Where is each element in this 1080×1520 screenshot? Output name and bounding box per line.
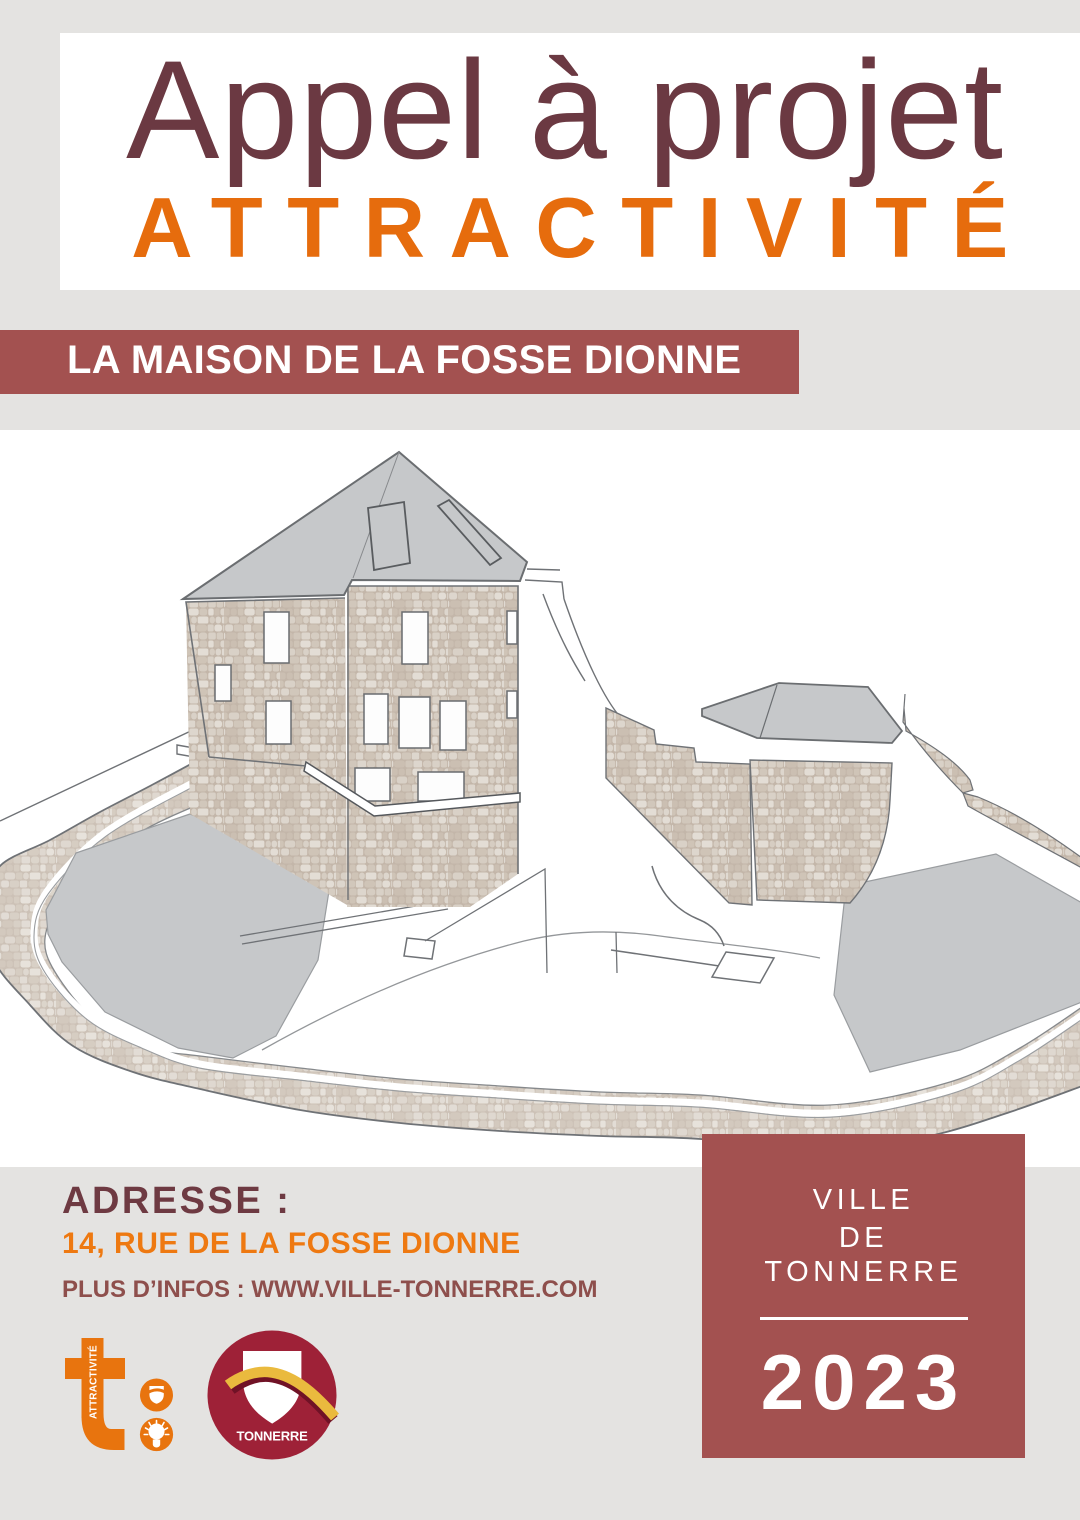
- svg-text:TONNERRE: TONNERRE: [236, 1429, 308, 1444]
- svg-text:ATTRACTIVITÉ: ATTRACTIVITÉ: [87, 1345, 100, 1419]
